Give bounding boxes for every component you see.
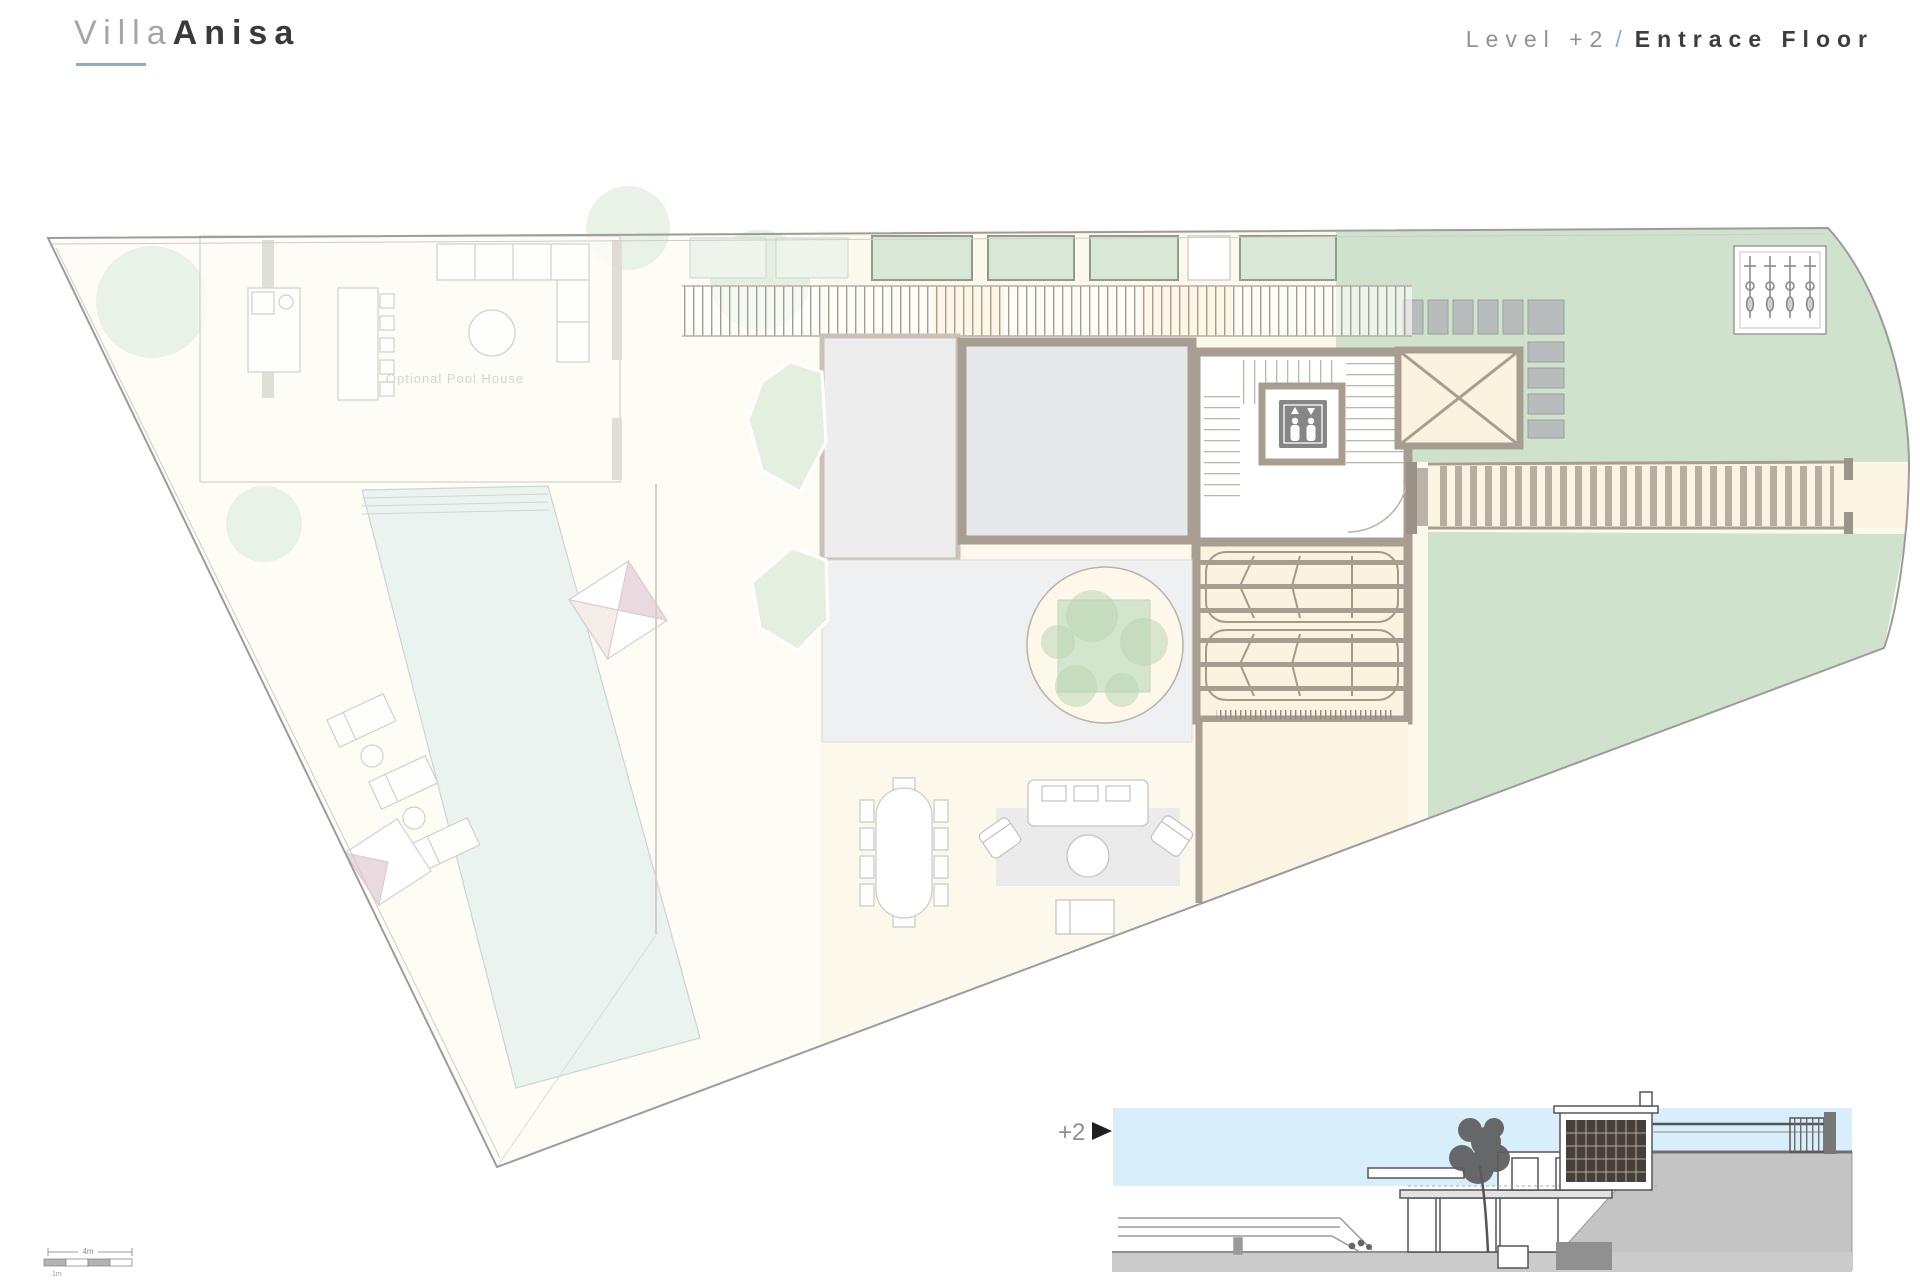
balustrade — [682, 286, 1412, 336]
site-plan-drawing: Optional Pool House — [0, 0, 1920, 1280]
section-elevation: +2 — [1058, 1092, 1852, 1272]
bench — [1056, 900, 1114, 934]
elevator — [1262, 386, 1342, 462]
lawn-south — [1428, 532, 1906, 818]
elevator-icon — [1279, 400, 1327, 448]
pool-house-label: Optional Pool House — [386, 371, 524, 386]
section-pool-deck — [1118, 1218, 1372, 1254]
living-room-floor — [962, 342, 1192, 540]
section-tower — [1554, 1092, 1658, 1190]
section-ground — [1112, 1252, 1852, 1272]
entry-door-leaf — [1406, 462, 1417, 534]
bike-parking — [1734, 246, 1826, 334]
driveway-stripes — [1434, 466, 1834, 526]
section-foundation — [1556, 1242, 1612, 1270]
section-arrow-icon — [1092, 1122, 1112, 1140]
section-slab — [1400, 1190, 1612, 1198]
pool-house-table — [469, 310, 515, 356]
section-lower-floor — [1408, 1198, 1558, 1252]
tree-canopy — [226, 486, 302, 562]
garage-door — [1216, 710, 1394, 719]
pool-house-wall — [612, 240, 622, 360]
stair-hall — [1196, 352, 1417, 542]
optional-pool-house: Optional Pool House — [200, 236, 622, 482]
section-level-marker: +2 — [1058, 1119, 1112, 1146]
section-canopy — [1368, 1168, 1464, 1178]
scale-bar-segments — [44, 1259, 132, 1266]
courtyard-planter — [1027, 567, 1183, 723]
floor-plan-sheet: VillaAnisa Level +2/Entrace Floor — [0, 0, 1920, 1280]
section-level-label: +2 — [1058, 1119, 1085, 1146]
rear-courtyard — [1196, 722, 1408, 905]
side-table — [403, 807, 425, 829]
coffee-table — [1067, 835, 1109, 877]
scale-bar-total-label: 4m — [82, 1247, 93, 1256]
skylight — [1398, 350, 1520, 446]
kitchen-island — [338, 288, 378, 400]
driveway-wall — [1428, 462, 1846, 464]
driveway — [1412, 458, 1908, 534]
building-left-room — [822, 336, 958, 560]
scale-bar: 4m 1m — [44, 1246, 132, 1278]
section-kiosk — [1790, 1118, 1824, 1152]
dining-table — [876, 788, 932, 918]
scale-bar-unit-label: 1m — [52, 1271, 62, 1278]
planter-glass-row — [690, 236, 1336, 280]
side-table — [361, 745, 383, 767]
pool-house-wall — [612, 418, 622, 480]
patio — [822, 560, 1192, 742]
tree-canopy — [96, 246, 208, 358]
garage — [1196, 542, 1408, 720]
section-shrubs — [1349, 1240, 1372, 1250]
